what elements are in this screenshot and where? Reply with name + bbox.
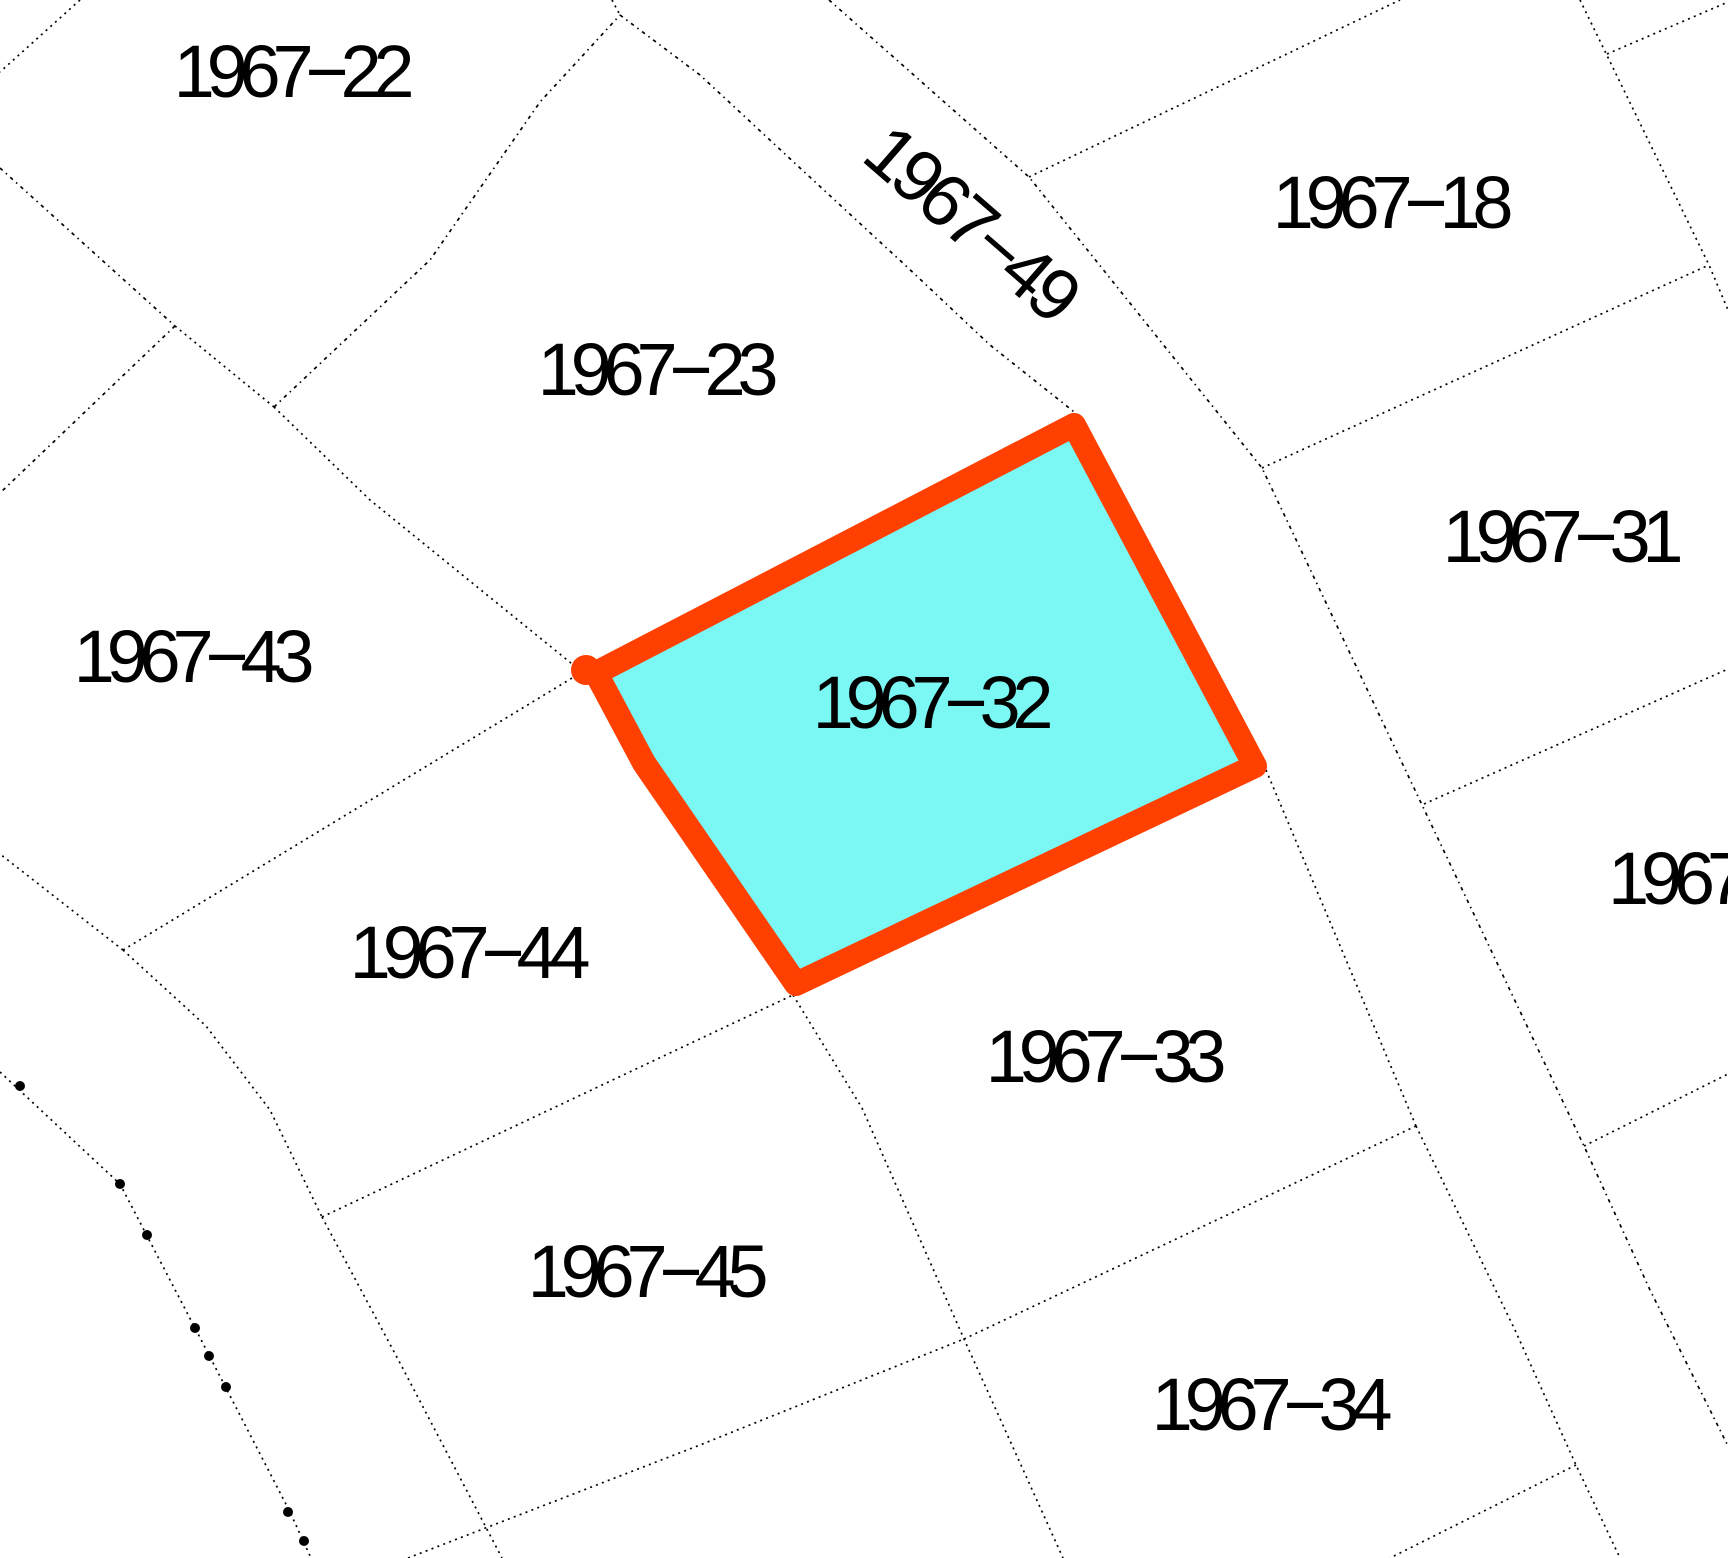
svg-text:1967−31: 1967−31: [1443, 495, 1681, 578]
svg-text:1967−33: 1967−33: [986, 1015, 1224, 1098]
svg-text:1967−43: 1967−43: [74, 615, 312, 698]
svg-text:1967−23: 1967−23: [538, 328, 776, 411]
svg-text:1967−22: 1967−22: [174, 30, 412, 113]
svg-text:1967−18: 1967−18: [1273, 161, 1511, 244]
svg-text:1967−44: 1967−44: [350, 911, 589, 994]
svg-text:1967−32: 1967−32: [813, 661, 1051, 744]
svg-text:1967−45: 1967−45: [528, 1230, 767, 1313]
svg-text:1967−34: 1967−34: [1152, 1363, 1391, 1446]
svg-text:1967−3: 1967−3: [1608, 837, 1728, 920]
